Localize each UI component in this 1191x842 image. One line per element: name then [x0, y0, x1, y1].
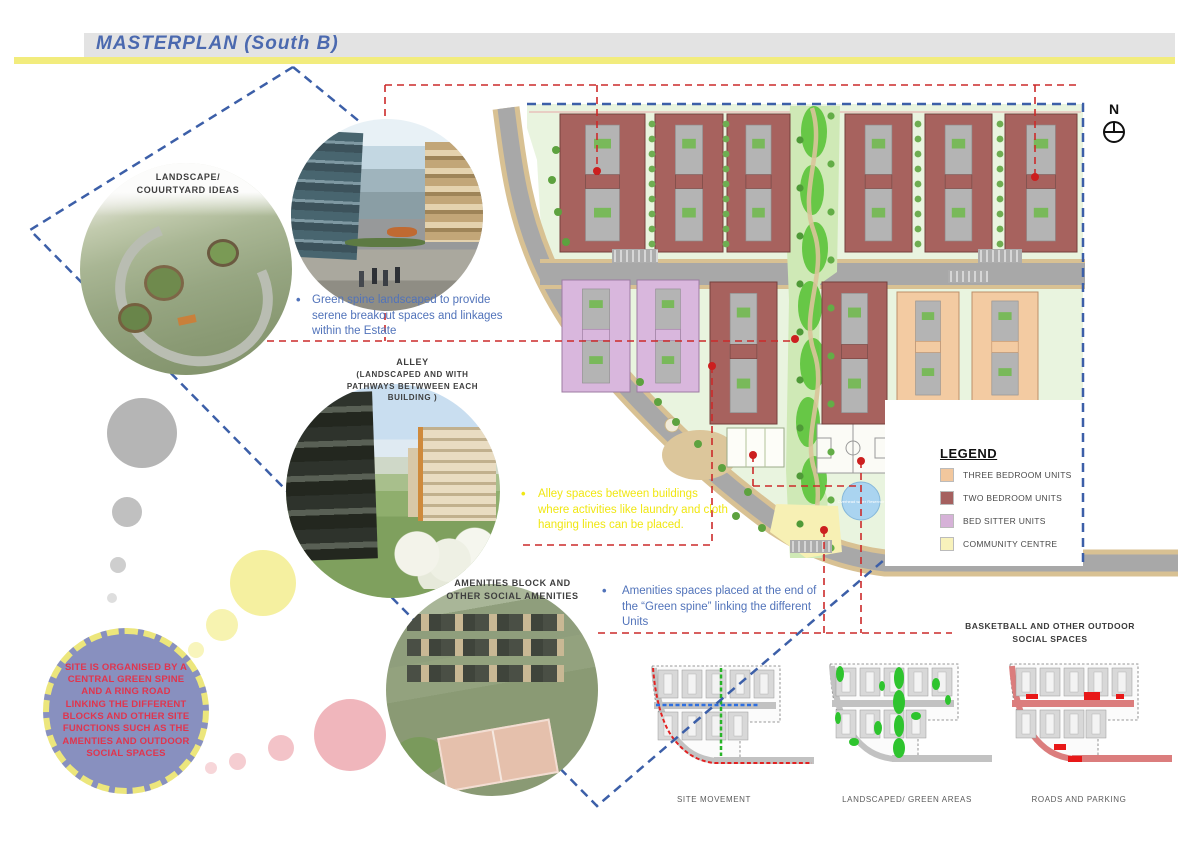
legend-label: BED SITTER UNITS: [963, 516, 1046, 526]
court-line-graphic: [492, 731, 503, 781]
legend-label: COMMUNITY CENTRE: [963, 539, 1057, 549]
legend-swatch: [940, 491, 954, 505]
legend: LEGEND THREE BEDROOM UNITS TWO BEDROOM U…: [940, 446, 1090, 560]
building-graphic: [418, 427, 496, 521]
legend-item-three-bedroom: THREE BEDROOM UNITS: [940, 468, 1090, 482]
dark-building-graphic: [286, 391, 379, 561]
legend-swatch: [940, 537, 954, 551]
legend-label: TWO BEDROOM UNITS: [963, 493, 1062, 503]
basketball-court-graphic: [437, 719, 559, 793]
legend-label: THREE BEDROOM UNITS: [963, 470, 1072, 480]
legend-title: LEGEND: [940, 446, 1090, 461]
bullet: •: [296, 292, 301, 307]
note-amenities-spaces: Amenities spaces placed at the end of th…: [622, 584, 834, 631]
label-alley-subtitle: (LANDSCAPED AND WITH PATHWAYS BETWWEEN E…: [330, 369, 495, 404]
photo-alley-render: [286, 384, 500, 598]
building-row-graphic: [407, 614, 564, 631]
building-graphic: [425, 142, 483, 242]
legend-item-bed-sitter: BED SITTER UNITS: [940, 514, 1090, 528]
legend-swatch: [940, 514, 954, 528]
planter-graphic: [144, 265, 184, 301]
planting-graphic: [345, 238, 426, 247]
legend-swatch: [940, 468, 954, 482]
note-green-spine: Green spine landscaped to provide serene…: [312, 293, 512, 340]
label-basketball-outdoor: BASKETBALL AND OTHER OUTDOOR SOCIAL SPAC…: [955, 620, 1145, 646]
site-organisation-text: SITE IS ORGANISED BY A CENTRAL GREEN SPI…: [62, 662, 190, 761]
label-landscape-courtyard: LANDSCAPE/ COUURTYARD IDEAS: [118, 171, 258, 197]
bullet: •: [521, 486, 526, 501]
label-amenities-block: AMENITIES BLOCK AND OTHER SOCIAL AMENITI…: [420, 577, 605, 603]
masterplan-board: MASTERPLAN (South B): [0, 0, 1191, 842]
building-row-graphic: [407, 665, 564, 682]
north-indicator: N: [1096, 100, 1132, 148]
planter-graphic: [118, 303, 152, 333]
svg-text:N: N: [1109, 101, 1119, 117]
flower-bed-graphic: [387, 227, 417, 237]
label-alley: ALLEY (LANDSCAPED AND WITH PATHWAYS BETW…: [330, 356, 495, 404]
bullet: •: [602, 583, 607, 598]
photo-amenities-aerial: [386, 584, 598, 796]
building-row-graphic: [407, 639, 564, 656]
people-silhouettes-graphic: [372, 268, 377, 284]
photo-courtyard-between-buildings: [291, 119, 483, 311]
legend-item-two-bedroom: TWO BEDROOM UNITS: [940, 491, 1090, 505]
legend-item-community-centre: COMMUNITY CENTRE: [940, 537, 1090, 551]
label-alley-title: ALLEY: [330, 356, 495, 369]
note-alley-spaces: Alley spaces between buildings where act…: [538, 487, 730, 534]
site-organisation-circle: SITE IS ORGANISED BY A CENTRAL GREEN SPI…: [43, 628, 209, 794]
